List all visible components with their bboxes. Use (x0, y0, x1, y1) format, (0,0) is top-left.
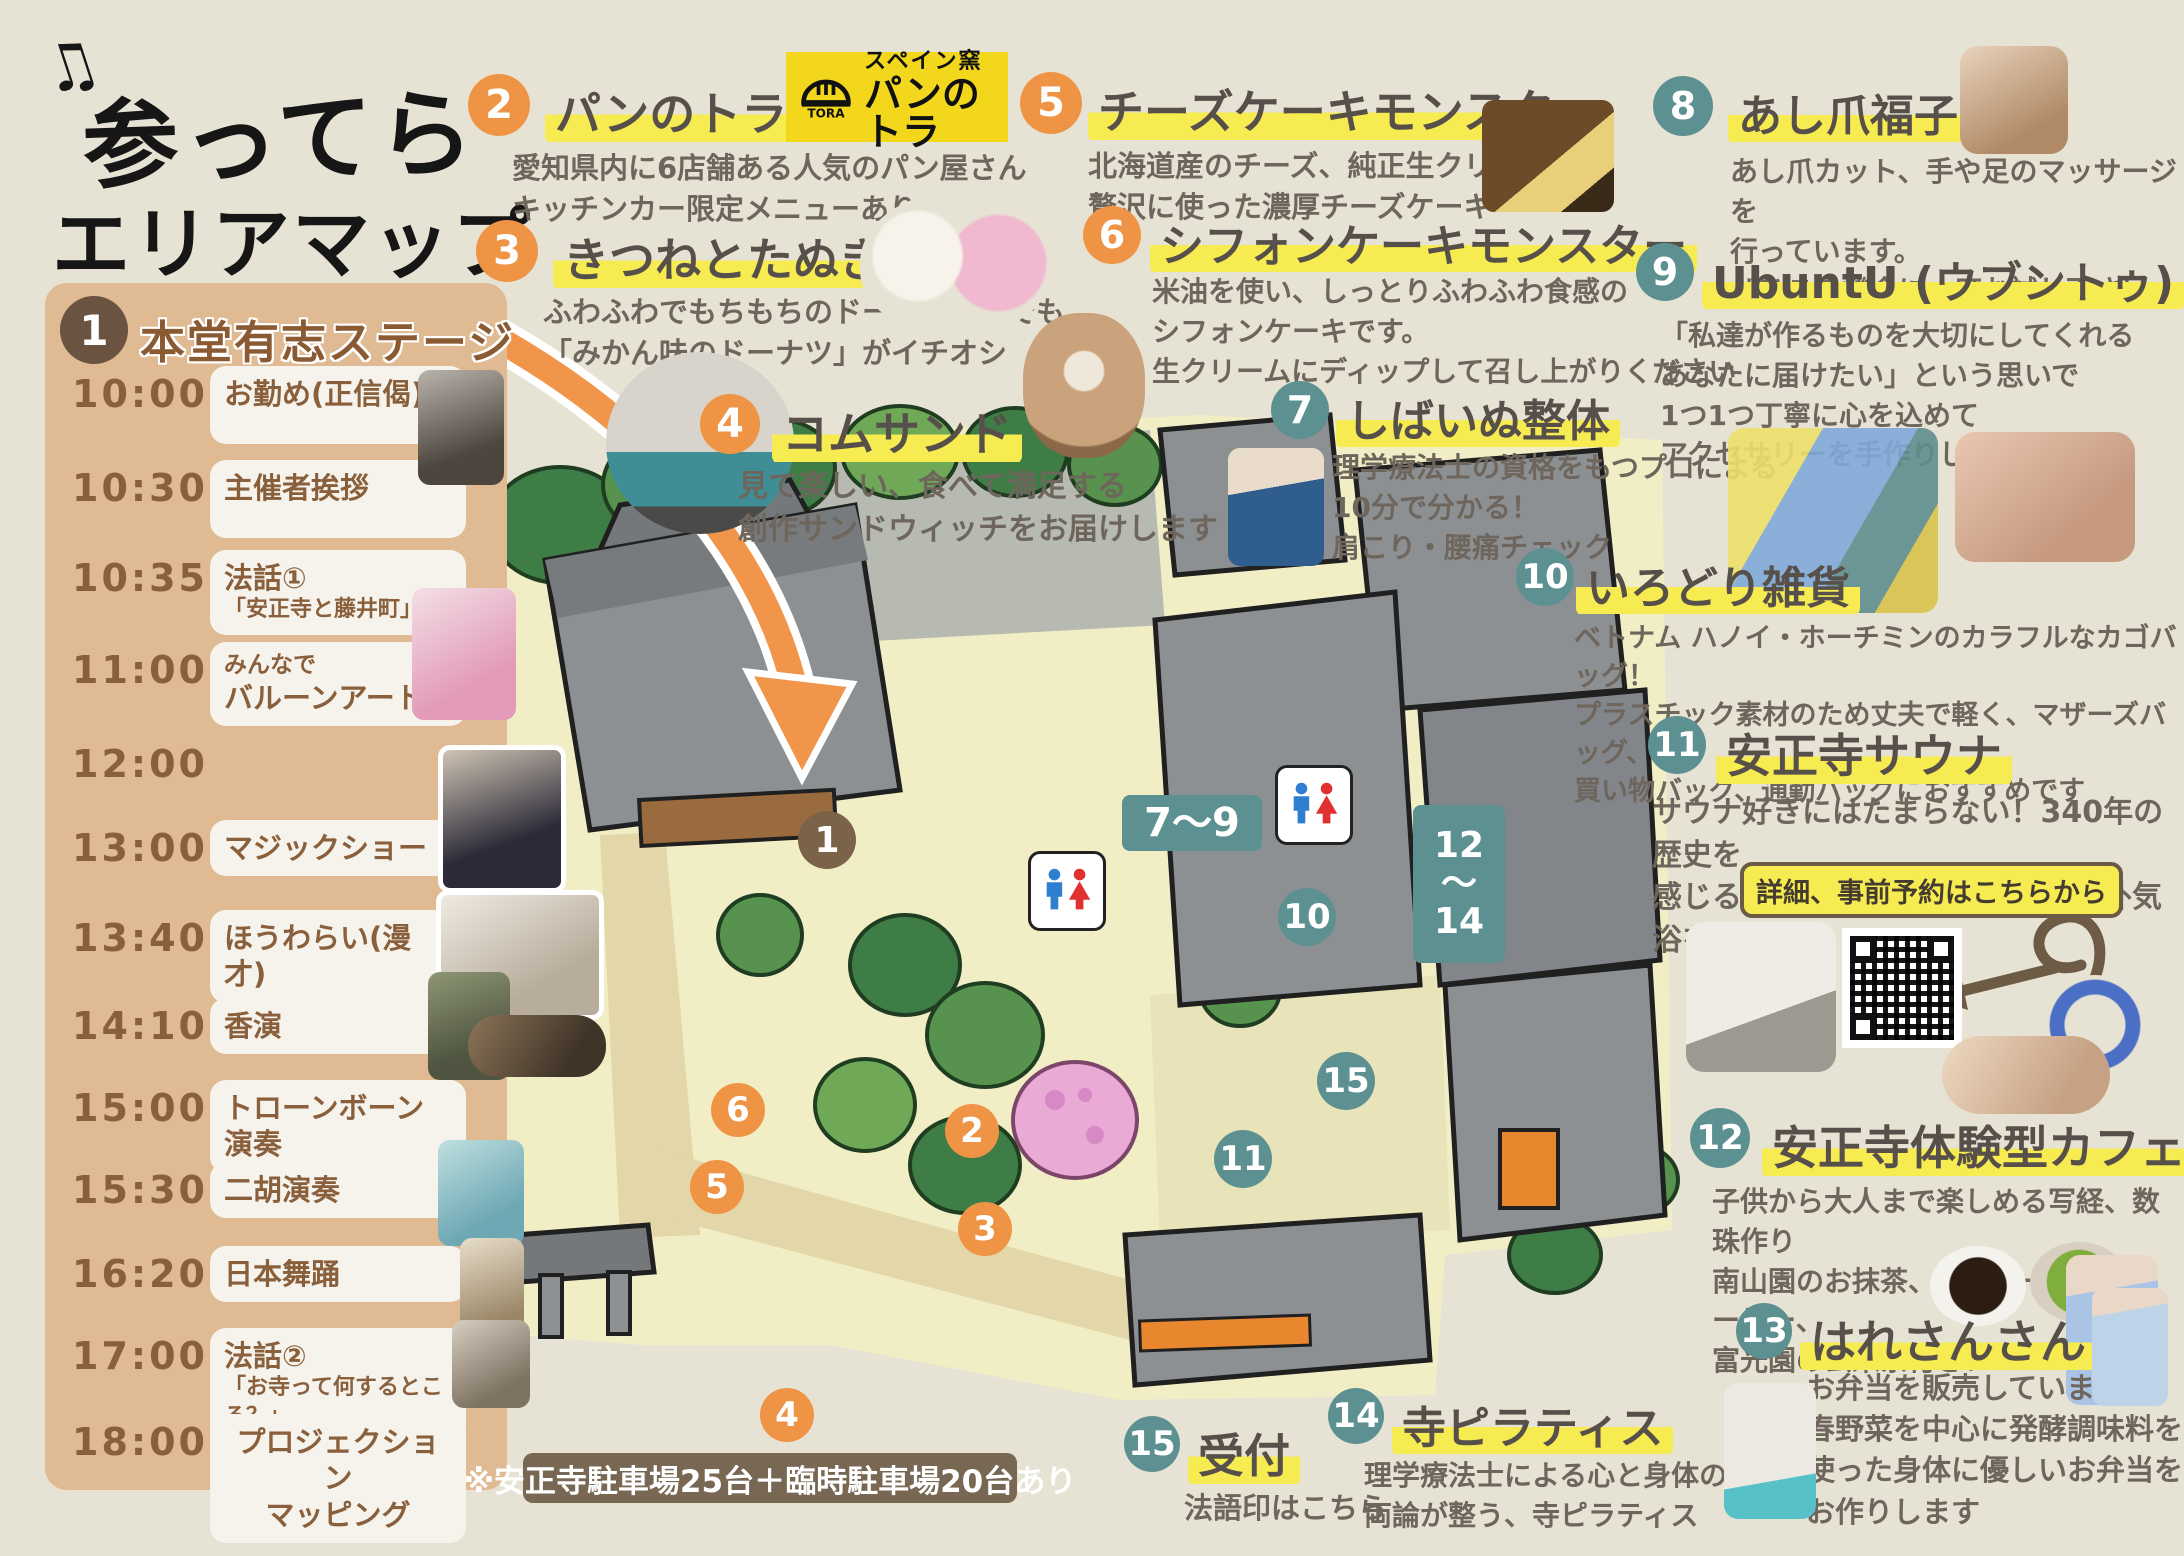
schedule-event-label: バルーンアート (224, 681, 424, 715)
schedule-time: 18:00 (72, 1420, 208, 1464)
map-marker-11: 11 (1214, 1130, 1272, 1188)
map-range-7-9: 7～9 (1122, 795, 1262, 851)
vendor-8-name: あし爪福子 (1728, 80, 1968, 144)
vendor-4-desc: 見て楽しい、食べて満足する 創作サンドウィッチをお届けします (738, 466, 1218, 551)
schedule-event-label: 法話② (224, 1339, 307, 1373)
vendor-3-badge: 3 (476, 220, 538, 282)
photo-sutra-writing (1942, 1036, 2110, 1114)
photo-chiffon-cake (1023, 313, 1145, 458)
vendor-14-badge: 14 (1328, 1388, 1384, 1444)
photo-rings (1955, 432, 2135, 562)
vendor-15-desc: 法語印はこちら (1184, 1488, 1387, 1529)
bread-icon: TORA (798, 69, 854, 125)
photo-cheesecake (1482, 100, 1614, 212)
schedule-event-label: 主催者挨拶 (224, 471, 369, 505)
vendor-4-badge: 4 (700, 394, 760, 454)
photo-sauna-tent (1686, 922, 1836, 1072)
map-marker-15: 15 (1317, 1052, 1375, 1110)
schedule-time: 10:00 (72, 372, 208, 416)
schedule-event-label: プロジェクション マッピング (236, 1425, 439, 1532)
vendor-12-badge: 12 (1690, 1108, 1750, 1168)
vendor-4-name: コムサンド (772, 398, 1022, 464)
schedule-time: 15:30 (72, 1168, 208, 1212)
schedule-event-label: 二胡演奏 (224, 1173, 340, 1207)
schedule-event: トローンボーン演奏 (210, 1080, 466, 1173)
photo-balloon-art (412, 588, 516, 720)
vendor-8-badge: 8 (1653, 76, 1713, 136)
vendor-3-name: きつねとたぬき (553, 224, 894, 290)
vendor-14-desc: 理学療法士による心と身体の 両論が整う、寺ピラティス (1364, 1456, 1727, 1536)
schedule-event: プロジェクション マッピング (210, 1414, 466, 1543)
schedule-time: 10:35 (72, 556, 208, 600)
pan-no-tora-logo: TORA スペイン窯 パンのトラ (786, 52, 1008, 142)
vendor-10-name: いろどり雑貨 (1576, 552, 1860, 616)
photo-foot-care (1960, 46, 2068, 154)
vendor-6-badge: 6 (1083, 206, 1141, 264)
restroom-icon (1028, 851, 1106, 931)
vendor-11-name: 安正寺サウナ (1716, 720, 2012, 786)
schedule-event-label: 法話① (224, 561, 307, 595)
schedule-time: 10:30 (72, 466, 208, 510)
schedule-event-label: ほうわらい(漫才) (224, 921, 411, 991)
schedule-event: マジックショー (210, 820, 466, 876)
schedule-time: 15:00 (72, 1086, 208, 1130)
schedule-event: 二胡演奏 (210, 1162, 466, 1218)
photo-trombone (468, 1015, 606, 1077)
schedule-time: 13:00 (72, 826, 208, 870)
vendor-13-badge: 13 (1736, 1303, 1792, 1359)
map-range-12-14: 12 ～ 14 (1413, 805, 1505, 963)
photo-erhu-duo (438, 1140, 524, 1246)
vendor-9-badge: 9 (1636, 243, 1694, 301)
map-marker-2: 2 (945, 1104, 999, 1158)
logo-name-text: パンのトラ (864, 75, 996, 151)
map-marker-3: 3 (958, 1202, 1012, 1256)
schedule-time: 17:00 (72, 1334, 208, 1378)
vendor-2-name: パンのトラ (545, 78, 797, 144)
vendor-11-badge: 11 (1648, 716, 1706, 774)
map-marker-5: 5 (690, 1160, 744, 1214)
vendor-7-badge: 7 (1271, 381, 1329, 439)
vendor-14-name: 寺ピラティス (1392, 1392, 1673, 1456)
photo-magician (438, 745, 566, 893)
sauna-qr-code (1842, 928, 1962, 1048)
photo-donuts (860, 192, 1052, 334)
event-area-map-poster: ♫ 参ってら エリアマップ ♪ 1 本堂有志ステージ 10:00 お勤め(正信偈… (0, 0, 2184, 1556)
photo-pilates-instructor (1724, 1383, 1816, 1519)
schedule-time: 13:40 (72, 916, 208, 960)
map-marker-10: 10 (1278, 888, 1336, 946)
vendor-10-badge: 10 (1516, 548, 1574, 606)
vendor-2-badge: 2 (468, 74, 530, 136)
vendor-5-badge: 5 (1020, 72, 1082, 134)
vendor-6-name: シフォンケーキモンスター (1150, 210, 1697, 274)
restroom-icon (1275, 765, 1353, 845)
schedule-event-label: 日本舞踊 (224, 1257, 340, 1291)
schedule-event-label: お勤め(正信偈) (224, 377, 425, 411)
schedule-event-label: トローンボーン演奏 (224, 1091, 424, 1161)
map-marker-1: 1 (798, 811, 856, 869)
schedule-time: 14:10 (72, 1004, 208, 1048)
svg-text:TORA: TORA (807, 106, 845, 120)
parking-note: ※安正寺駐車場25台＋臨時駐車場20台あり (523, 1453, 1017, 1503)
vendor-9-name: UbuntU (ウブントゥ) (1702, 247, 2184, 311)
poster-subtitle: エリアマップ (52, 182, 532, 294)
map-marker-6: 6 (711, 1083, 765, 1137)
map-marker-4: 4 (760, 1388, 814, 1442)
vendor-7-name: しばいぬ整体 (1336, 385, 1620, 449)
vendor-12-name: 安正寺体験型カフェ (1762, 1112, 2184, 1178)
schedule-time: 16:20 (72, 1252, 208, 1296)
vendor-15-badge: 15 (1124, 1416, 1180, 1472)
sauna-booking-banner: 詳細、事前予約はこちらから (1740, 862, 2123, 918)
blossom-tree (1013, 1062, 1137, 1178)
schedule-title: 本堂有志ステージ (140, 306, 515, 371)
photo-monk (418, 370, 504, 485)
vendor-15-name: 受付 (1188, 1420, 1300, 1486)
logo-kiln-text: スペイン窯 (864, 43, 996, 75)
vendor-13-name: はれさんさん (1800, 1306, 2096, 1372)
schedule-event: 日本舞踊 (210, 1246, 466, 1302)
photo-bento-staff (2092, 1288, 2168, 1406)
schedule-time: 12:00 (72, 742, 208, 786)
stage-marker-1-badge: 1 (60, 296, 128, 364)
schedule-event-label: 香演 (224, 1009, 282, 1043)
photo-physical-therapist (1228, 448, 1324, 566)
photo-projection (452, 1320, 530, 1408)
schedule-time: 11:00 (72, 648, 208, 692)
schedule-event-label: マジックショー (224, 831, 427, 865)
